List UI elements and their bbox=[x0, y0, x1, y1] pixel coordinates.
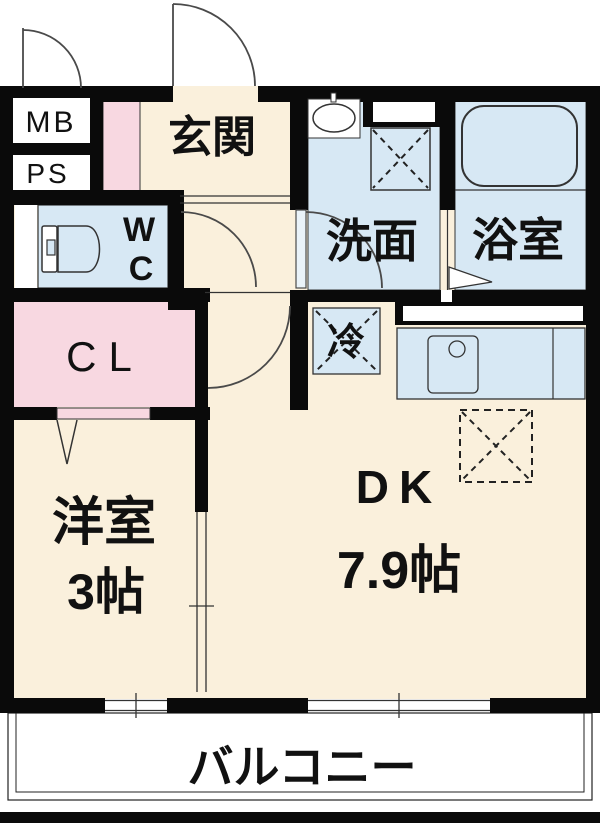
kitchen-faucet-icon bbox=[449, 341, 465, 357]
kitchen-window bbox=[403, 306, 583, 321]
toilet-bowl bbox=[58, 226, 100, 272]
wall-bottom-left bbox=[0, 698, 105, 713]
bathroom-label: 浴室 bbox=[472, 214, 564, 266]
shoe-cabinet-area bbox=[103, 98, 140, 192]
western-room-label: 洋室 bbox=[52, 494, 156, 552]
bathtub-icon bbox=[462, 106, 577, 186]
toilet-label-bottom: C bbox=[129, 250, 154, 288]
closet-label: CL bbox=[66, 333, 144, 380]
washroom-door-leaf bbox=[296, 210, 306, 288]
dk-size-label: 7.9帖 bbox=[337, 542, 461, 600]
bathroom-door-gap bbox=[441, 290, 452, 302]
wall-wc-top bbox=[0, 190, 184, 205]
wall-closet-top bbox=[0, 288, 210, 302]
washroom-label: 洗面 bbox=[326, 215, 418, 267]
dk-label: DK bbox=[356, 461, 442, 513]
closet-door-strip bbox=[57, 408, 150, 419]
toilet-handle bbox=[47, 240, 55, 255]
toilet-icon bbox=[42, 226, 100, 272]
meter-box-label: MB bbox=[26, 106, 77, 139]
wall-right bbox=[586, 86, 600, 713]
vanity-faucet-icon bbox=[331, 93, 336, 102]
balcony-label: バルコニー bbox=[187, 741, 416, 793]
pipe-space-label: PS bbox=[26, 158, 69, 189]
floor-plan: MB PS 玄関 W C 洗面 浴室 CL 冷 DK 7.9帖 洋室 3帖 バル… bbox=[0, 0, 600, 823]
wall-closet-bottom-right bbox=[150, 407, 210, 420]
kitchen-counter bbox=[397, 328, 585, 399]
refrigerator-label: 冷 bbox=[327, 322, 365, 364]
wall-bottom-right bbox=[490, 698, 600, 713]
wall-hall-washroom bbox=[290, 86, 308, 210]
washing-machine-pan bbox=[371, 128, 430, 190]
toilet-label-top: W bbox=[123, 211, 156, 249]
balcony-edge-band bbox=[0, 812, 600, 823]
vanity-sink-icon bbox=[313, 104, 355, 132]
entrance-label: 玄関 bbox=[168, 113, 256, 162]
floor-plan-page: MB PS 玄関 W C 洗面 浴室 CL 冷 DK 7.9帖 洋室 3帖 バル… bbox=[0, 0, 600, 823]
wall-fridge-stub bbox=[290, 290, 308, 410]
wall-bottom-mid bbox=[167, 698, 308, 713]
wall-closet-bottom-left bbox=[0, 407, 57, 420]
pipe-shaft-area bbox=[15, 205, 37, 288]
wall-partition bbox=[195, 288, 208, 512]
western-room-size-label: 3帖 bbox=[67, 564, 145, 620]
entrance-doorway-floor bbox=[173, 86, 258, 102]
washroom-window bbox=[373, 102, 435, 122]
